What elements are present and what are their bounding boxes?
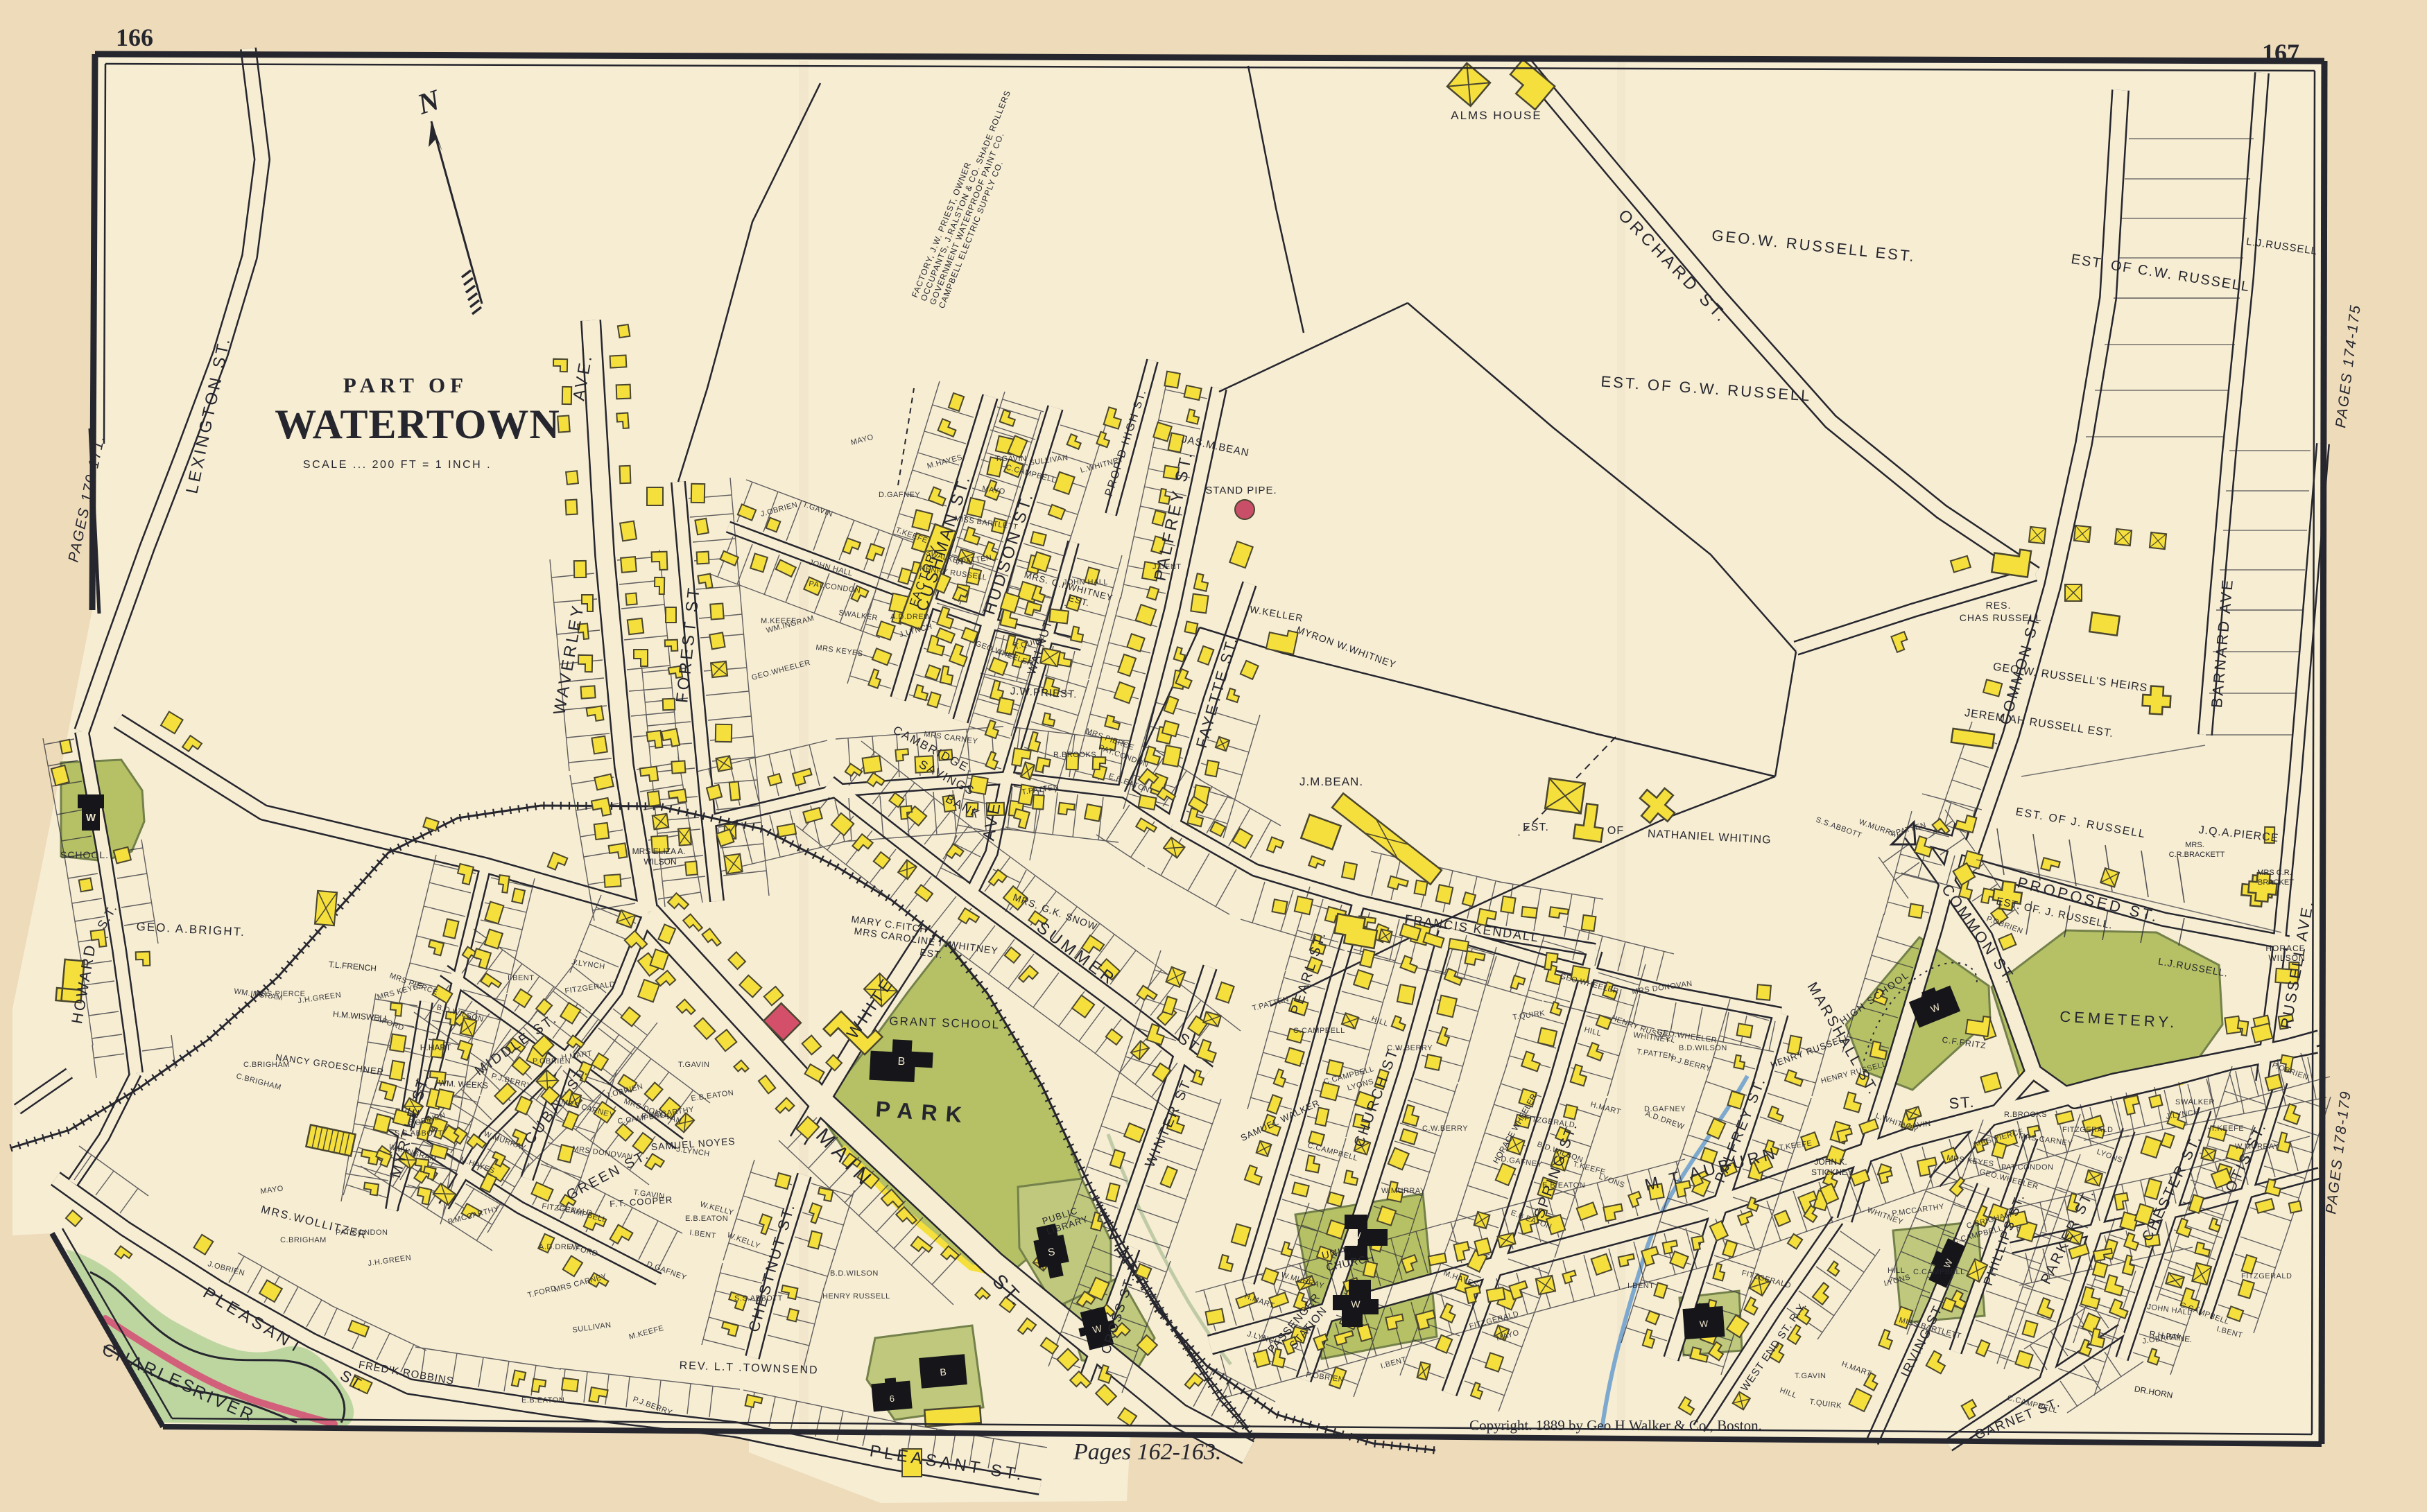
svg-text:M.KEEFE: M.KEEFE <box>761 617 797 625</box>
svg-text:B: B <box>940 1366 947 1378</box>
svg-text:FITZGERALD: FITZGERALD <box>2062 1126 2113 1134</box>
svg-text:D.GAFNEY: D.GAFNEY <box>879 491 920 499</box>
svg-text:E.B.EATON: E.B.EATON <box>685 1215 728 1223</box>
svg-text:OF: OF <box>1607 825 1624 837</box>
svg-text:S.S.ABBOTT: S.S.ABBOTT <box>734 1294 783 1303</box>
svg-text:W: W <box>1699 1319 1709 1330</box>
svg-text:R.BROOKS: R.BROOKS <box>2004 1111 2047 1119</box>
svg-text:W: W <box>1351 1298 1361 1310</box>
svg-text:WATERTOWN: WATERTOWN <box>275 401 560 447</box>
svg-text:PAT.CONDON: PAT.CONDON <box>2001 1163 2054 1172</box>
svg-text:W: W <box>1351 1230 1361 1241</box>
svg-text:JOHN K.STICKNEY: JOHN K.STICKNEY <box>1811 1157 1853 1177</box>
svg-text:W.MURRAY: W.MURRAY <box>2235 1142 2279 1151</box>
svg-text:167: 167 <box>2262 39 2299 67</box>
svg-text:W: W <box>86 812 96 824</box>
svg-text:HORACEWILSON: HORACEWILSON <box>2265 944 2305 963</box>
svg-text:Copyright. 1889 by Geo H.Walke: Copyright. 1889 by Geo H.Walker & Co., B… <box>1469 1417 1762 1434</box>
svg-text:HENRY RUSSELL: HENRY RUSSELL <box>822 1292 890 1301</box>
svg-text:B.D.WILSON: B.D.WILSON <box>1679 1044 1727 1052</box>
svg-text:FITZGERALD: FITZGERALD <box>2241 1272 2292 1280</box>
svg-text:C.BRIGHAM: C.BRIGHAM <box>280 1236 327 1244</box>
svg-text:J.DENT: J.DENT <box>1152 563 1182 571</box>
svg-text:C.BRIGHAM: C.BRIGHAM <box>243 1061 290 1069</box>
svg-text:C.W.BERRY: C.W.BERRY <box>1422 1124 1468 1133</box>
svg-text:C.W.BERRY: C.W.BERRY <box>1387 1044 1433 1052</box>
svg-text:T.GAVIN: T.GAVIN <box>995 455 1026 463</box>
svg-text:ALMS HOUSE: ALMS HOUSE <box>1451 109 1541 122</box>
svg-text:I.BENT: I.BENT <box>1627 1282 1654 1290</box>
svg-text:T.KEEFE: T.KEEFE <box>2211 1124 2244 1133</box>
svg-text:SCHOOL.: SCHOOL. <box>60 849 109 860</box>
svg-text:STAND PIPE.: STAND PIPE. <box>1205 485 1277 496</box>
svg-text:C.CAMPBELL: C.CAMPBELL <box>1293 1027 1345 1035</box>
svg-text:E.B.EATON: E.B.EATON <box>521 1396 564 1405</box>
svg-text:R.BROOKS: R.BROOKS <box>1053 751 1096 759</box>
svg-text:ST.: ST. <box>1949 1093 1976 1113</box>
svg-text:JOHN HALL: JOHN HALL <box>1063 578 1108 586</box>
svg-text:J.M.BEAN.: J.M.BEAN. <box>1299 775 1363 788</box>
svg-text:S.S.ABBOTT: S.S.ABBOTT <box>395 1129 443 1138</box>
svg-text:I.BENT: I.BENT <box>508 974 534 982</box>
svg-text:T.GAVIN: T.GAVIN <box>1795 1372 1826 1380</box>
svg-text:EST.: EST. <box>1523 822 1549 833</box>
svg-text:A.D.DREW: A.D.DREW <box>539 1243 580 1251</box>
svg-text:SWALKER: SWALKER <box>2175 1098 2215 1106</box>
svg-text:PART OF: PART OF <box>343 373 468 397</box>
svg-text:PAT.CONDON: PAT.CONDON <box>336 1228 388 1237</box>
svg-text:HILL: HILL <box>1888 1267 1905 1275</box>
svg-text:166: 166 <box>116 24 153 51</box>
svg-text:E.B.EATON: E.B.EATON <box>1542 1181 1585 1190</box>
svg-text:A.D.DREW: A.D.DREW <box>890 613 931 621</box>
svg-text:H.HART: H.HART <box>420 1043 451 1052</box>
svg-text:B: B <box>897 1056 906 1068</box>
svg-text:MRS PIERCE: MRS PIERCE <box>254 990 305 998</box>
svg-text:T.GAVIN: T.GAVIN <box>678 1061 709 1069</box>
svg-text:Pages 162-163.: Pages 162-163. <box>1073 1439 1221 1465</box>
svg-text:C.CAMPBELL: C.CAMPBELL <box>1913 1268 1965 1276</box>
svg-text:B.D.WILSON: B.D.WILSON <box>830 1269 879 1278</box>
svg-text:6: 6 <box>889 1393 895 1405</box>
svg-text:W.MURRAY: W.MURRAY <box>1381 1187 1426 1195</box>
svg-text:SCALE ... 200 FT = 1 INCH .: SCALE ... 200 FT = 1 INCH . <box>303 459 492 471</box>
